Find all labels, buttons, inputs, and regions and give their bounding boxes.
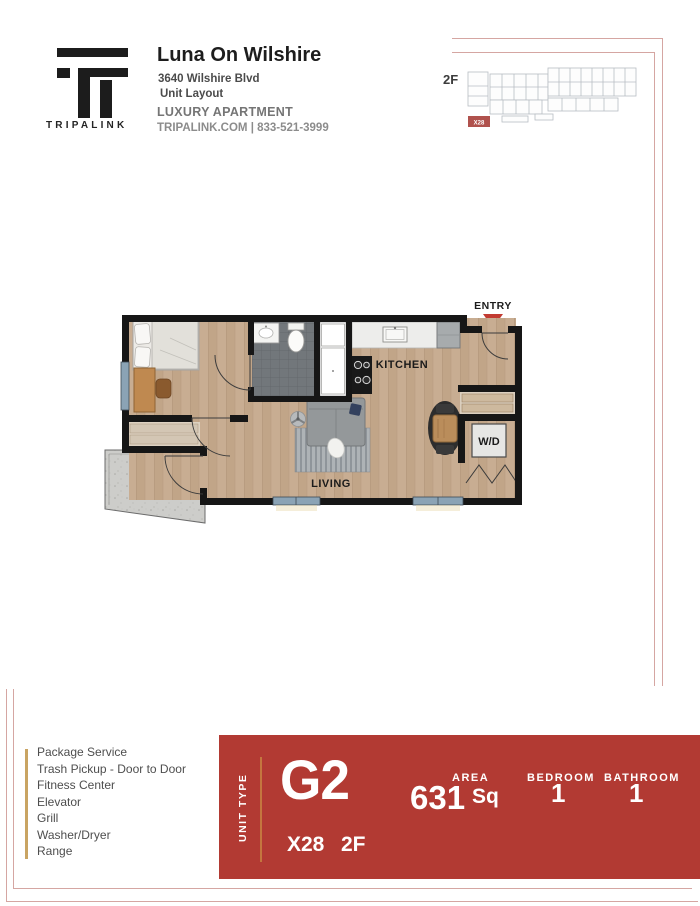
unit-type-value: G2 [280, 752, 349, 808]
property-address: 3640 Wilshire Blvd [158, 73, 260, 85]
brand-name: TRIPALINK [46, 120, 127, 131]
stove [352, 356, 372, 394]
unit-number: X28 [287, 833, 324, 857]
area-unit: Sq [472, 785, 499, 809]
amenity-item: Range [37, 843, 186, 860]
ceiling-fan-icon [291, 412, 306, 427]
logo-mark-square [57, 68, 70, 78]
logo-mark-stem-left [78, 68, 90, 118]
unit-type-label: UNIT TYPE [237, 757, 253, 859]
frame-line-right-inner [654, 52, 655, 686]
layout-subtitle: Unit Layout [160, 88, 223, 100]
property-category: LUXURY APARTMENT [157, 105, 293, 119]
washer-dryer-label: W/D [478, 436, 499, 448]
refrigerator [437, 322, 460, 348]
amenities-accent-line [25, 749, 28, 859]
banner-accent-line [260, 757, 262, 862]
bathroom-vanity [253, 323, 279, 343]
bedroom-closet [128, 422, 200, 446]
entry-closet [460, 392, 515, 414]
frame-line-top-outer [452, 38, 663, 39]
unit-floor: 2F [341, 833, 366, 857]
amenity-item: Elevator [37, 794, 186, 811]
kitchen-label: KITCHEN [376, 359, 428, 371]
floor-plan: ENTRY [100, 278, 540, 538]
frame-line-bottom-inner [13, 888, 692, 889]
living-label: LIVING [311, 478, 351, 490]
area-label: AREA [452, 772, 489, 784]
amenity-item: Grill [37, 810, 186, 827]
amenity-item: Fitness Center [37, 777, 186, 794]
bedroom-count: 1 [551, 780, 565, 806]
logo-mark [57, 48, 128, 57]
bathroom-count: 1 [629, 780, 643, 806]
toilet [288, 323, 304, 352]
kitchen-counter [352, 322, 437, 348]
logo-mark-stem-right [100, 80, 112, 118]
linen-closet [320, 322, 346, 396]
frame-line-top-inner [452, 52, 655, 53]
flyer-page: TRIPALINK Luna On Wilshire 3640 Wilshire… [0, 0, 700, 906]
amenities-list: Package Service Trash Pickup - Door to D… [37, 744, 186, 860]
site-map-building-outline [468, 68, 636, 122]
contact-info: TRIPALINK.COM | 833-521-3999 [157, 122, 329, 134]
entry-label: ENTRY [474, 300, 512, 312]
site-map: X28 [440, 60, 655, 140]
bed [133, 320, 199, 370]
amenity-item: Trash Pickup - Door to Door [37, 761, 186, 778]
area-value: 631 [410, 781, 465, 814]
frame-line-left-outer [6, 689, 7, 902]
site-map-unit-label: X28 [474, 121, 485, 127]
dining-set [428, 401, 462, 455]
frame-line-bottom-outer [6, 901, 698, 902]
property-name: Luna On Wilshire [157, 44, 321, 67]
frame-line-left-inner [13, 689, 14, 889]
frame-line-right-outer [662, 38, 663, 686]
amenity-item: Washer/Dryer [37, 827, 186, 844]
amenity-item: Package Service [37, 744, 186, 761]
